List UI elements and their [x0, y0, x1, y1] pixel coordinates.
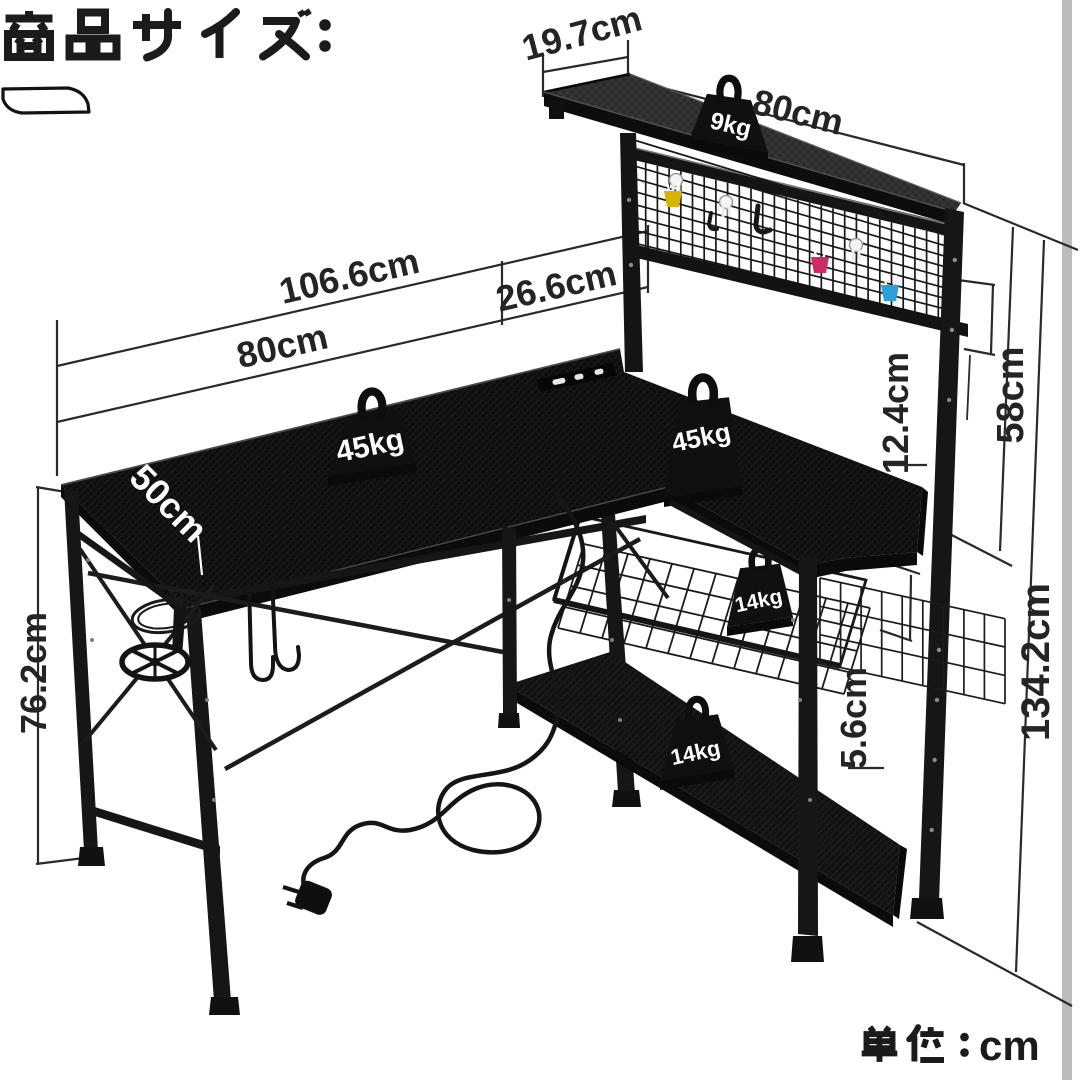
svg-text:12.4cm: 12.4cm: [875, 352, 916, 474]
svg-text:cm: cm: [979, 1022, 1040, 1069]
svg-text:134.2cm: 134.2cm: [1014, 583, 1058, 741]
svg-text:58cm: 58cm: [990, 346, 1032, 443]
svg-text:5.6cm: 5.6cm: [833, 667, 874, 769]
svg-text:76.2cm: 76.2cm: [13, 612, 54, 734]
